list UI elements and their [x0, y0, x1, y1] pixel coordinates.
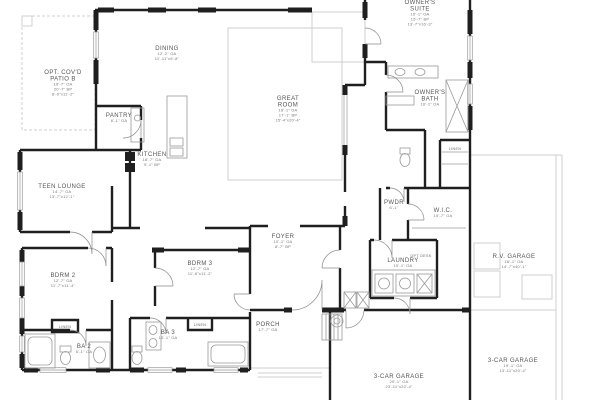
room-label-ba-3: BA 310'-1" OA	[159, 330, 178, 340]
room-label-kitchen: KITCHEN18'-7" OA9'-1" BP	[137, 152, 166, 167]
room-label-opt-desk: OPT DESK	[410, 254, 432, 258]
room-label-dining: DINING12'-2" OA11'-11"x9'-8"	[155, 46, 180, 61]
fixtures	[25, 66, 468, 368]
room-label-ba-2: BA 26'-1" OA	[76, 344, 93, 354]
windows	[18, 32, 473, 372]
room-label-great-room: GREATROOM18'-1" OA17'-1" BP15'-4"x20'-4"	[276, 96, 301, 122]
room-label-linen-ba3: LINEN	[194, 323, 207, 327]
room-label-foyer: FOYER10'-1" OA8'-7" BP	[272, 234, 295, 249]
room-label-bdrm-3: BDRM 312'-7" OA11'-6"x11'-2"	[187, 261, 212, 276]
room-label-porch: PORCH17'-7" OA	[256, 322, 280, 332]
room-label-owners-suite: OWNER'SSUITE16'-1" OA15'-7" BP13'-7"x16'…	[405, 0, 436, 26]
room-label-bdrm-2: BDRM 212'-7" OA11'-7"x11'-4"	[50, 273, 75, 288]
floor-plan-canvas: OPT. COV'DPATIO B16'-7" OA20'-7" BP8'-0"…	[0, 0, 600, 400]
room-label-garage-3-car-main: 3-CAR GARAGE20'-1" OA23'-11"x20'-4"	[374, 374, 424, 389]
room-label-pwdr: PWDR6'-1"	[384, 200, 404, 210]
room-label-linen-ba2: LINEN	[59, 325, 72, 329]
room-labels: OPT. COV'DPATIO B16'-7" OA20'-7" BP8'-0"…	[38, 0, 538, 389]
room-label-pantry: PANTRY6'-1" OA	[106, 113, 132, 123]
room-label-laundry: LAUNDRY10'-1" OA	[387, 258, 418, 268]
floor-plan-drawing: OPT. COV'DPATIO B16'-7" OA20'-7" BP8'-0"…	[0, 0, 600, 400]
room-label-linen-owners: LINEN	[449, 147, 462, 151]
room-label-rv-garage: R.V. GARAGE16'-1" OA14'-7"x40'-1"	[493, 254, 536, 269]
room-label-wic: W.I.C.10'-7" OA	[434, 208, 453, 218]
room-label-garage-3-car-right: 3-CAR GARAGE19'-1" OA13'-11"x20'-4"	[488, 358, 538, 373]
room-label-opt-covd-patio-b: OPT. COV'DPATIO B16'-7" OA20'-7" BP8'-0"…	[44, 70, 82, 96]
room-label-owners-bath: OWNER'SBATH16'-1" OA	[415, 90, 446, 106]
room-label-teen-lounge: TEEN LOUNGE14'-7" OA13'-7"x12'-1"	[38, 184, 85, 199]
